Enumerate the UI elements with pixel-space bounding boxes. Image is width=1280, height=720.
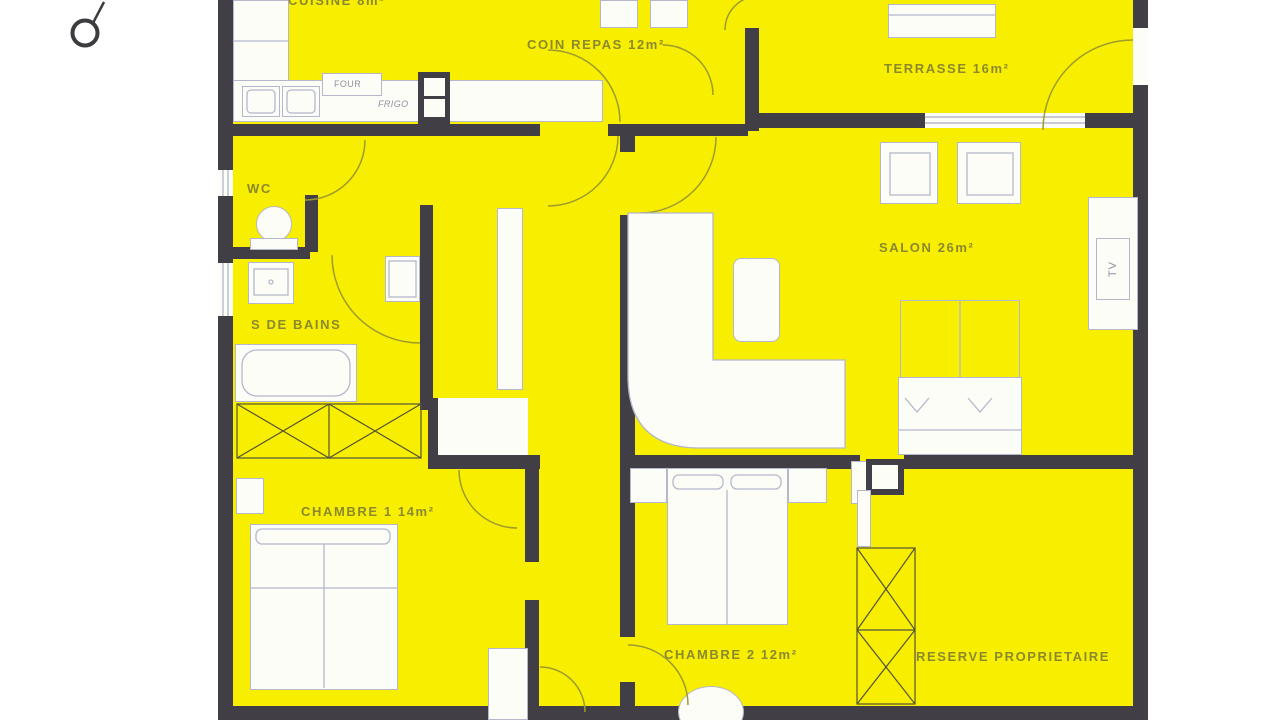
right-door-gap <box>1133 28 1148 85</box>
terrasse-bottom-wall-right <box>1085 113 1135 128</box>
right-wall-lower <box>1133 460 1148 706</box>
corridor-salon-wall <box>620 215 635 460</box>
kitchen-bottom-wall <box>233 124 540 136</box>
room-label-salon: SALON 26m² <box>879 240 974 255</box>
closet-shaft-recess <box>438 398 528 455</box>
dining-chair-1 <box>600 0 638 28</box>
fridge-cell-top <box>424 78 445 96</box>
dining-chair-2 <box>650 0 688 28</box>
tv-label: TV <box>1107 261 1119 277</box>
reserve-door-track <box>857 490 871 547</box>
bathtub <box>235 344 357 402</box>
left-wall-top <box>218 0 233 170</box>
salon-bottom-wall-right <box>904 455 1135 469</box>
left-window-1 <box>218 170 233 196</box>
shaft-left-wall <box>428 398 438 458</box>
kitchen-cupboard <box>233 0 289 83</box>
left-wall-bottom <box>218 316 233 706</box>
corridor-salon-wall-stub <box>620 130 635 152</box>
left-window-2 <box>218 263 233 316</box>
chambre1-window-strip <box>488 648 528 720</box>
room-label-terrasse: TERRASSE 16m² <box>884 61 1010 76</box>
coffee-table <box>733 258 780 342</box>
oven-label: FOUR <box>334 79 361 89</box>
terrasse-window <box>925 113 1085 128</box>
room-label-chambre-1: CHAMBRE 1 14m² <box>301 504 435 519</box>
washbasin <box>248 262 294 304</box>
chambre2-nightstand-right <box>788 468 827 503</box>
armchair-2 <box>957 142 1021 204</box>
chambre2-left-wall-b <box>620 682 635 706</box>
kitchen-sink-left <box>242 86 280 117</box>
chambre2-nightstand-left <box>630 468 667 503</box>
washbasin-2 <box>385 256 420 302</box>
chambre1-nightstand <box>236 478 264 514</box>
fridge-label: FRIGO <box>378 99 409 109</box>
room-label-reserve: RESERVE PROPRIETAIRE <box>916 649 1110 664</box>
north-indicator-icon <box>73 2 105 46</box>
bath-right-wall <box>420 205 433 410</box>
room-label-wc: WC <box>247 181 272 196</box>
right-wall-stub <box>1133 0 1148 30</box>
wc-right-wall <box>305 195 318 252</box>
room-label-coin-repas: COIN REPAS 12m² <box>527 37 665 52</box>
room-label-cuisine: CUISINE 8m² <box>288 0 385 8</box>
corridor-door-leaf <box>497 208 523 390</box>
room-label-salle-de-bains: S DE BAINS <box>251 317 341 332</box>
toilet-tank <box>250 238 298 250</box>
floor-plan: TV <box>0 0 1280 720</box>
tv-screen: TV <box>1096 238 1130 300</box>
daybed-outline <box>900 300 1020 378</box>
fridge-cell-bottom <box>424 99 445 117</box>
kitchen-sink-right <box>282 86 320 117</box>
chambre1-right-wall-a <box>525 460 539 562</box>
chambre1-bed <box>250 524 398 690</box>
room-label-chambre-2: CHAMBRE 2 12m² <box>664 647 798 662</box>
closet-bottom-wall <box>428 455 540 469</box>
terrasse-table <box>888 4 996 38</box>
duct-shaft <box>866 459 904 495</box>
armchair-1 <box>880 142 938 204</box>
toilet-bowl <box>256 206 292 242</box>
salon-bottom-wall-left <box>635 455 860 469</box>
chambre2-bed <box>667 468 788 625</box>
sofa-bed <box>898 377 1022 455</box>
terrasse-bottom-wall-left <box>755 113 925 128</box>
